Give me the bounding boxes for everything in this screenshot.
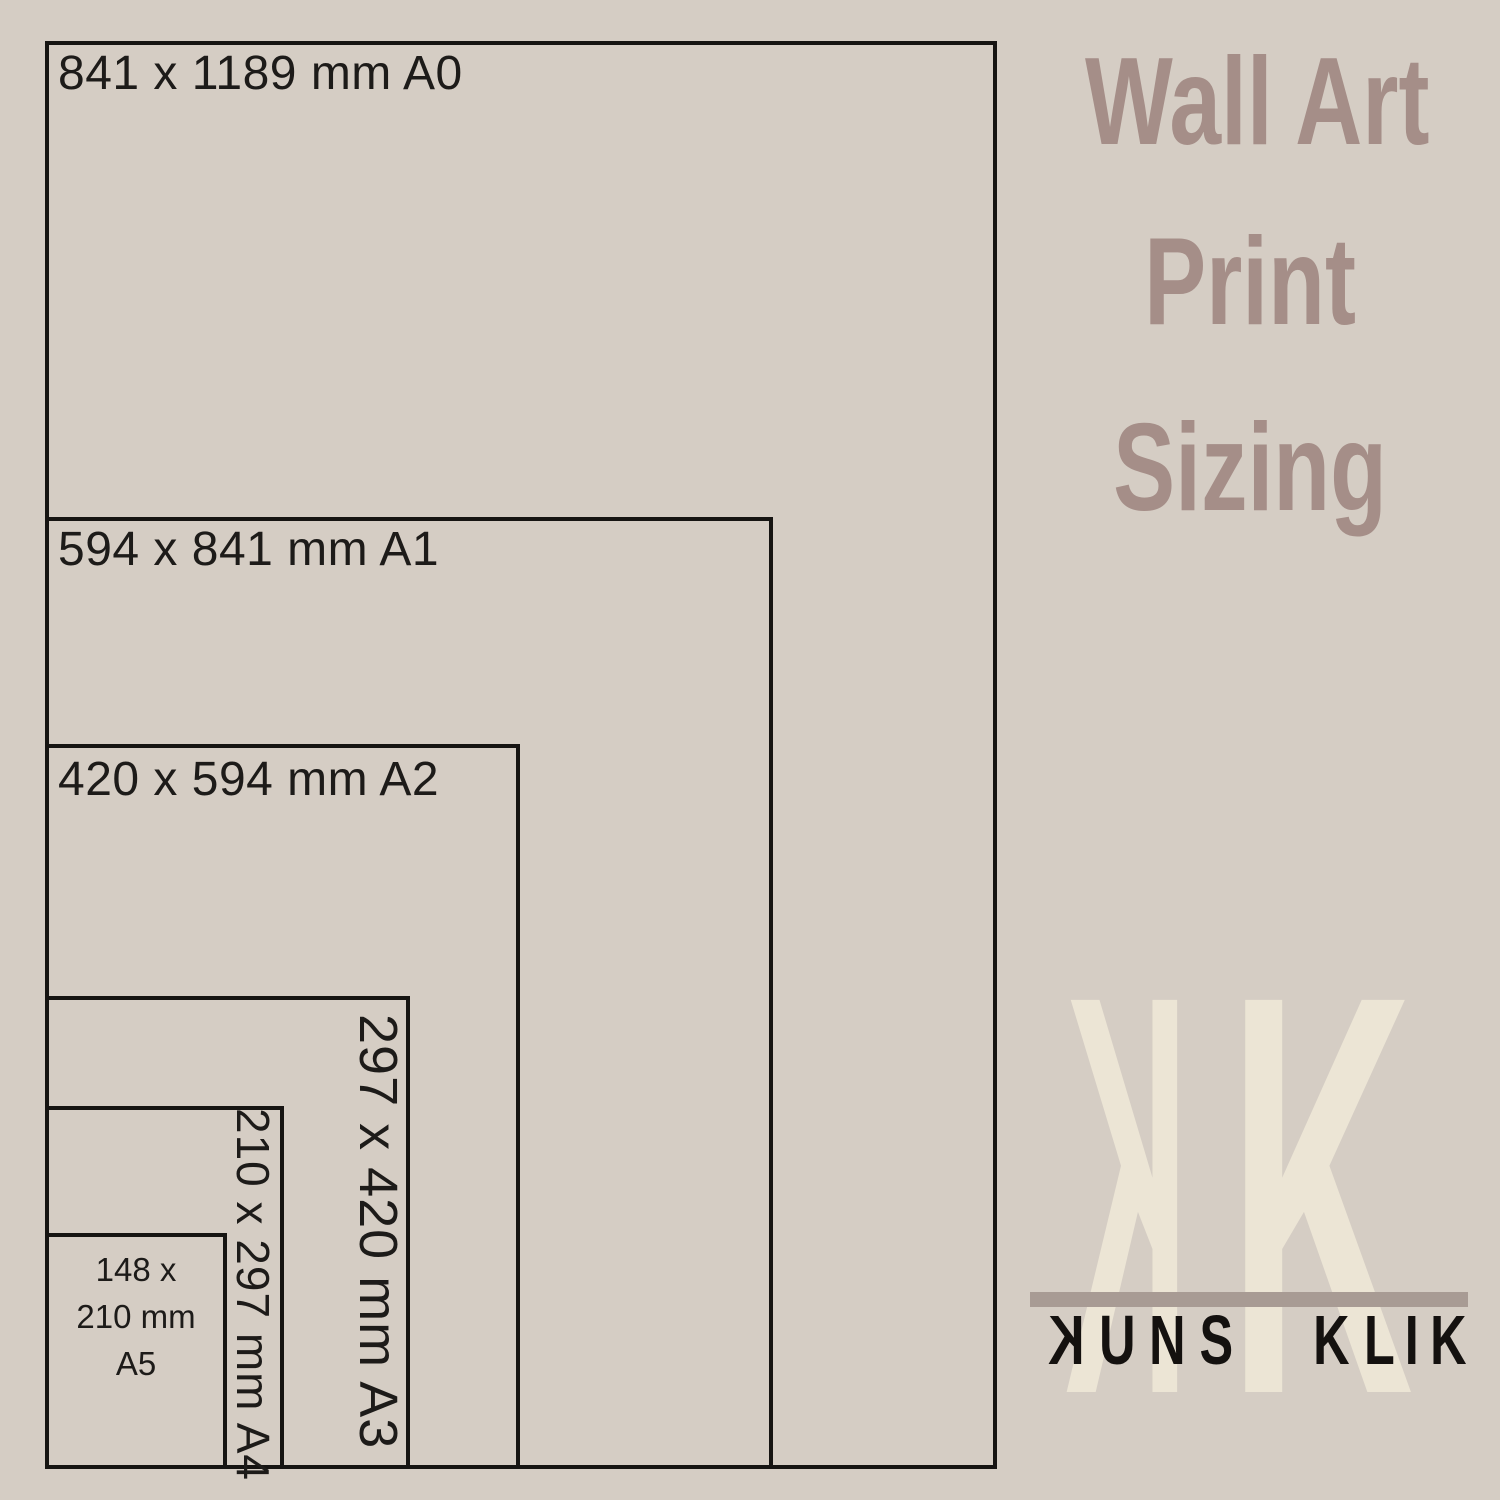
wordmark-letter-k-mirrored: K [1048,1305,1084,1375]
wordmark-letter-k3: K [1431,1305,1467,1375]
size-label-a3: 297 x 420 mm A3 [347,1014,409,1449]
size-label-a5-line1: 148 x [49,1246,223,1293]
logo-monogram-k-mirrored: K [1065,910,1189,1490]
logo-monogram-k: K [1228,910,1413,1490]
monogram-k-left-glyph: K [1065,910,1189,1480]
size-label-a5-line3: A5 [49,1340,223,1387]
wordmark-letter-n: N [1149,1305,1185,1375]
logo-wordmark-kuns: K U N S [1041,1305,1223,1375]
page-title-line3: Sizing [1085,406,1415,530]
wordmark-letter-k2: K [1313,1305,1349,1375]
size-label-a4: 210 x 297 mm A4 [226,1108,280,1481]
wordmark-letter-l: L [1364,1305,1395,1375]
size-label-a0: 841 x 1189 mm A0 [58,48,463,101]
size-label-a5: 148 x 210 mm A5 [49,1246,223,1387]
size-label-a5-line2: 210 mm [49,1293,223,1340]
print-sizing-infographic: 841 x 1189 mm A0 594 x 841 mm A1 420 x 5… [0,0,1500,1500]
wordmark-letter-i: I [1405,1305,1419,1375]
logo-wordmark-klik: K L I K [1306,1305,1474,1375]
wordmark-letter-s: S [1199,1305,1233,1375]
size-label-a2: 420 x 594 mm A2 [58,754,439,807]
monogram-k-right-glyph: K [1228,910,1413,1480]
page-title-line1: Wall Art [1085,40,1415,164]
wordmark-letter-u: U [1099,1305,1135,1375]
page-title-line2: Print [1085,220,1415,344]
size-label-a1: 594 x 841 mm A1 [58,524,439,577]
